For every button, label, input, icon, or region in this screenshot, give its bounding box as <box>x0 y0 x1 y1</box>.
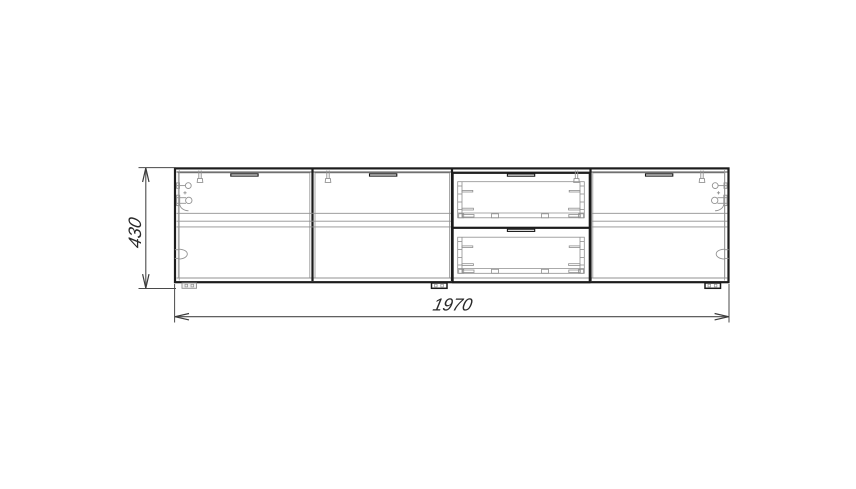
svg-text:430: 430 <box>125 216 145 250</box>
svg-text:1970: 1970 <box>431 295 474 315</box>
